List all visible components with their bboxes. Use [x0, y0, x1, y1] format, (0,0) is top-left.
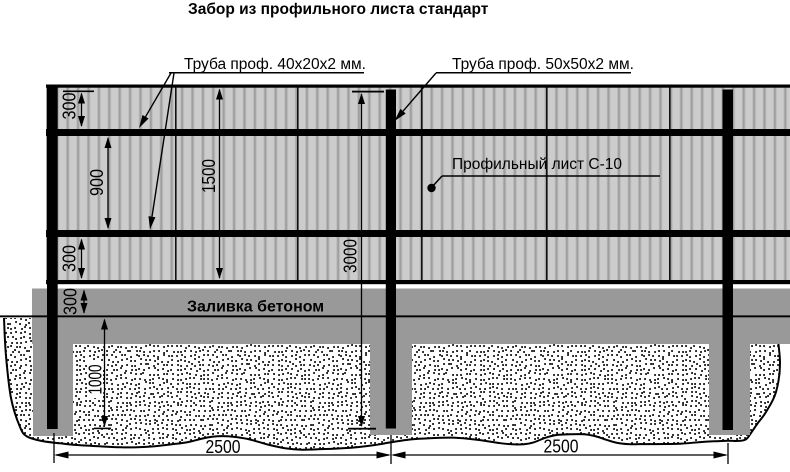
svg-text:900: 900 — [86, 169, 107, 196]
svg-text:300: 300 — [60, 288, 81, 315]
svg-text:Заливка бетоном: Заливка бетоном — [187, 299, 324, 316]
svg-text:Труба проф. 40х20х2 мм.: Труба проф. 40х20х2 мм. — [184, 56, 366, 73]
svg-text:Профильный лист С-10: Профильный лист С-10 — [452, 156, 622, 173]
svg-text:1000: 1000 — [85, 365, 106, 395]
svg-text:300: 300 — [59, 245, 80, 272]
svg-text:Труба проф. 50х50х2 мм.: Труба проф. 50х50х2 мм. — [452, 56, 634, 73]
svg-text:3000: 3000 — [340, 239, 361, 273]
svg-text:1500: 1500 — [198, 159, 219, 193]
svg-text:300: 300 — [59, 93, 80, 120]
svg-text:2500: 2500 — [206, 436, 241, 457]
svg-text:Забор из профильного листа ста: Забор из профильного листа стандарт — [188, 1, 489, 18]
svg-text:2500: 2500 — [544, 436, 579, 457]
